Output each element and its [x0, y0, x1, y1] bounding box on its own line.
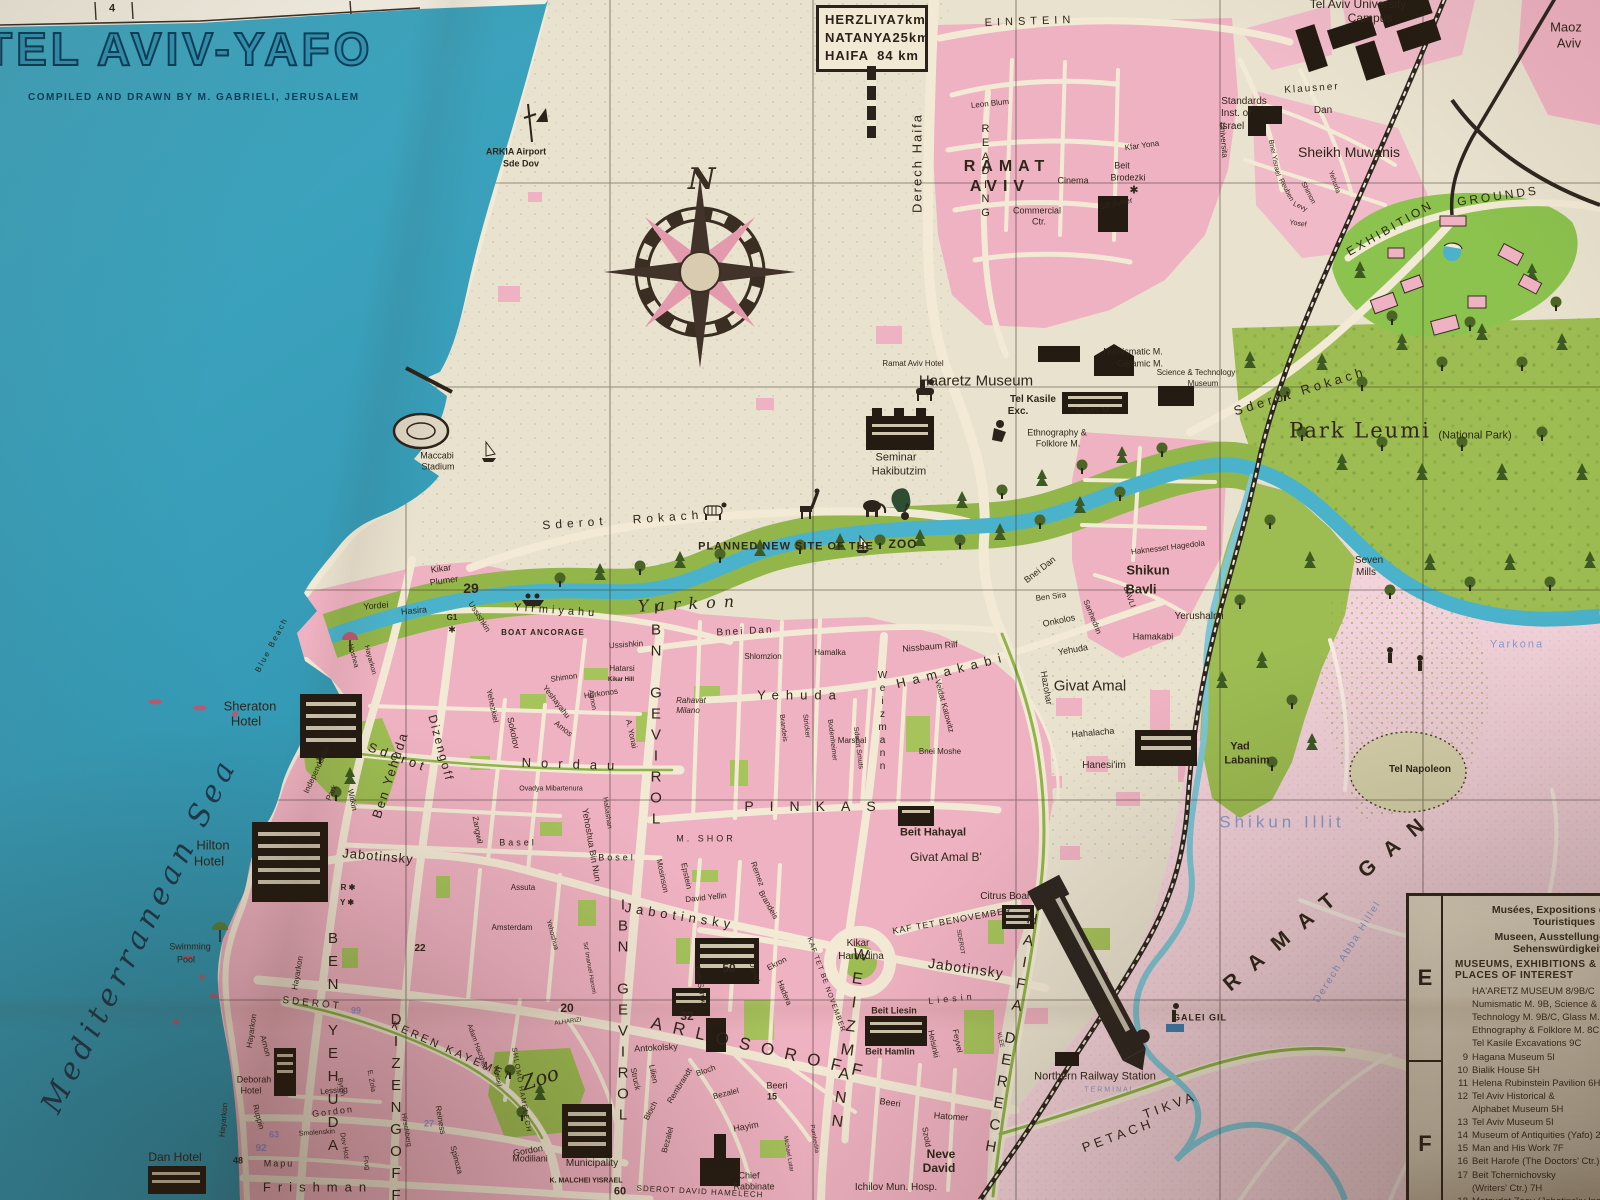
map-label: Bnei Moshe	[919, 748, 961, 756]
map-label: Yeshayahu	[541, 684, 571, 720]
map-label: Jabotinsky	[624, 901, 736, 931]
legend-item-number: 16	[1453, 1155, 1468, 1168]
map-label: Frishman	[263, 1181, 373, 1194]
map-label: Givat Amal B'	[910, 851, 982, 863]
map-label: Maoz	[1550, 21, 1582, 34]
legend-item: Alphabet Museum 5H	[1453, 1103, 1600, 1116]
map-label: Feyvel	[951, 1029, 964, 1054]
map-label: Witkin	[346, 789, 358, 812]
map-label: Yehoshua Bin Nun	[580, 808, 602, 883]
map-label: Hayarkon	[363, 645, 378, 676]
map-label: K. MALCHEI YISRAEL	[550, 1178, 623, 1185]
map-label: Ovadya Mibartenura	[519, 786, 582, 793]
map-label: Ctr.	[1032, 218, 1046, 227]
legend-item-number: 11	[1453, 1077, 1468, 1090]
map-label: Jabotinsky	[927, 956, 1004, 980]
map-label: Kfar Yona	[1124, 140, 1159, 153]
map-label: ALHARIZI	[554, 1017, 582, 1027]
map-label: DIZENGOFF	[389, 1011, 404, 1200]
legend-item-number	[1453, 1103, 1468, 1116]
map-label: Bloch	[643, 1100, 659, 1121]
map-label: Citrus Board	[980, 892, 1036, 902]
map-label: Jabotinsky	[342, 846, 414, 865]
map-label: Veidat Katowitz	[933, 679, 955, 734]
map-label: Lilien	[647, 1064, 659, 1084]
map-label: Shimon	[1299, 181, 1316, 205]
map-label: Hayarkon	[291, 955, 305, 990]
map-label: Sd' Avner	[1099, 197, 1134, 212]
map-label: Hatarsi	[609, 665, 634, 673]
map-label: Universita	[1217, 122, 1228, 158]
map-label: 15	[767, 1093, 777, 1102]
legend-item: 11Helena Rubinstein Pavilion 6H	[1453, 1077, 1600, 1090]
map-label: Amos	[552, 720, 573, 739]
legend-item: 16Beit Harofe (The Doctors' Ctr.)	[1453, 1155, 1600, 1168]
map-label: Bodenheimer	[826, 719, 838, 761]
map-label: Rembrandt	[666, 1067, 694, 1105]
map-label: Yirmiyahu	[513, 603, 598, 620]
map-label: Inst. of	[1221, 109, 1251, 119]
map-label: Leon Blum	[971, 98, 1010, 110]
map-label: Independence	[303, 745, 332, 794]
map-label: Hanesi'im	[1082, 761, 1126, 771]
map-label: Stadium	[421, 463, 454, 472]
legend-item-text: Beit Tchernichovsky	[1472, 1169, 1556, 1182]
map-label: Ekron	[766, 956, 788, 973]
map-label: Sokolov	[505, 716, 520, 749]
map-label: Sheraton	[224, 700, 277, 713]
map-label: Ben Sira	[1035, 591, 1066, 603]
map-label: Yehoshua	[545, 919, 560, 951]
map-label: Weizmann	[877, 670, 887, 774]
map-label: Nordau	[521, 756, 624, 773]
map-label: Reuben	[1277, 178, 1295, 203]
legend-item-text: Bialik House 5H	[1472, 1064, 1540, 1077]
map-label: Levy	[1292, 201, 1308, 214]
map-label: ✱	[448, 626, 456, 635]
map-label: TERMINAL	[1084, 1087, 1135, 1094]
map-label: 20	[560, 1002, 573, 1014]
map-label: M. SHOR	[676, 835, 736, 844]
map-label: Campus	[1348, 12, 1393, 24]
map-label: Pumbedita	[809, 1124, 820, 1153]
map-label: Rokach	[632, 509, 703, 526]
legend-item: 14Museum of Antiquities (Yafo) 2	[1453, 1129, 1600, 1142]
legend-item: HA'ARETZ MUSEUM 8/9B/C	[1453, 985, 1600, 998]
map-label: 50	[722, 962, 735, 974]
map-label: Sderot	[542, 515, 608, 532]
map-label: (National Park)	[1438, 431, 1511, 442]
map-label: Spinoza	[448, 1145, 463, 1175]
map-label: Hoshea	[346, 643, 359, 668]
map-label: R ✱	[341, 884, 356, 892]
legend-item: 18Metzudat Zeev (Jabotinsky Inst.	[1453, 1195, 1600, 1200]
map-label: Basel	[499, 839, 537, 848]
map-label: Szold	[920, 1126, 931, 1147]
map-label: Yerushalmi	[1174, 612, 1223, 622]
map-label: Zoo	[519, 1063, 561, 1094]
map-label: Bezalel	[661, 1126, 676, 1153]
map-label: Bosel	[598, 854, 636, 863]
map-label: Sderot Rokach	[1232, 365, 1368, 418]
legend-item-text: Beit Harofe (The Doctors' Ctr.)	[1472, 1155, 1599, 1168]
map-label: Onkolos	[1042, 613, 1076, 629]
map-label: Hakibutzim	[872, 467, 926, 478]
map-label: Reiness	[434, 1105, 447, 1135]
map-label: Mosinson	[655, 858, 670, 893]
map-label: BEN YEHUDA	[326, 930, 341, 1160]
map-label: Sderot Smuts	[852, 727, 864, 770]
distance-sign: HERZLIYA7km NATANYA25km HAIFA84 km	[816, 5, 928, 72]
map-label: Haaretz Museum	[919, 374, 1033, 389]
compass-north-label: N	[688, 162, 715, 197]
sign-dist: 84 km	[877, 47, 919, 65]
map-canvas: 4Mediterranean SeaBlue BeachARKIA Airpor…	[0, 0, 1600, 1200]
map-label: Helsinki	[926, 1029, 940, 1058]
legend-content: Musées, Expositions et Sites Touristique…	[1443, 896, 1600, 1200]
legend-title-fr: Musées, Expositions et Sites Touristique…	[1453, 904, 1600, 928]
legend-item: 12Tel Aviv Historical &	[1453, 1090, 1600, 1103]
map-label: Remez	[749, 861, 765, 888]
map-label: Beeri	[766, 1082, 787, 1091]
map-label: David	[747, 961, 760, 983]
map-title: TEL AVIV-YAFO	[0, 22, 373, 76]
map-label: IBN GEVIROL	[649, 601, 664, 832]
legend-item-text: Technology M. 9B/C, Glass M.	[1472, 1011, 1600, 1024]
map-label: 63	[269, 1131, 279, 1140]
map-label: 29	[463, 581, 479, 595]
map-label: Hamakabi	[895, 650, 1009, 690]
map-label: Sde Dov	[503, 160, 539, 169]
map-label: Hotel	[240, 1087, 261, 1096]
sign-place: HERZLIYA	[825, 11, 897, 29]
legend-item-number: 12	[1453, 1090, 1468, 1103]
legend-item-text: Tel Kasile Excavations 9C	[1472, 1037, 1581, 1050]
map-label: Maccabi	[420, 452, 454, 461]
map-label: Hilton	[196, 839, 229, 852]
map-label: Hayarkon	[246, 1013, 259, 1048]
map-label: Plumer	[429, 575, 458, 588]
map-label: Kikar	[430, 563, 452, 575]
sign-dist: 7km	[897, 11, 926, 29]
map-label: Milano	[676, 707, 700, 715]
legend-title-de: Museen, Ausstellungen und Sehenswürdigke…	[1453, 931, 1600, 955]
map-label: Sd' Imanuel Haromi	[581, 942, 596, 995]
map-label: EINSTEIN	[984, 15, 1075, 29]
map-label: Numismatic M.	[1103, 348, 1163, 357]
map-label: Shikun Illit	[1219, 814, 1344, 831]
map-label: Mills	[1356, 568, 1376, 578]
map-label: Hamalka	[814, 649, 846, 657]
map-label: Hazohar	[1039, 670, 1054, 705]
map-label: Glass M.	[1076, 407, 1112, 416]
map-label: Hahalacha	[1071, 727, 1115, 740]
map-label: Tel Kasile	[1010, 395, 1056, 405]
legend-item-number	[1453, 998, 1468, 1011]
map-label: Brandeis	[778, 714, 788, 742]
legend-title-en: MUSEUMS, EXHIBITIONS & PLACES OF INTERES…	[1455, 959, 1600, 981]
map-label: Y ✱	[340, 899, 354, 907]
map-label: TIKVA	[1141, 1089, 1199, 1121]
map-label: Ramat Aviv Hotel	[882, 360, 943, 368]
map-label: Deborah	[237, 1076, 272, 1085]
map-label: G1	[447, 614, 458, 622]
legend-item-number	[1453, 1037, 1468, 1050]
map-label: Northern Railway Station	[1034, 1072, 1156, 1083]
legend-item-number	[1453, 1011, 1468, 1024]
legend-item: Ethnography & Folklore M. 8C	[1453, 1024, 1600, 1037]
legend-item-text: Helena Rubinstein Pavilion 6H	[1472, 1077, 1600, 1090]
legend-item-number: 14	[1453, 1129, 1468, 1142]
legend-row-marker: E	[1409, 896, 1441, 1062]
legend-item-number	[1453, 985, 1468, 998]
map-label: Yehezkiel	[485, 689, 500, 724]
map-label: DERECH	[981, 1029, 1019, 1162]
legend-grid-strip: E F	[1409, 896, 1443, 1200]
map-label: Sheikh Muwanis	[1298, 145, 1400, 159]
map-label: Bnei Dan	[1023, 555, 1058, 585]
map-label: Liesin	[928, 992, 976, 1006]
map-label: Shlomzion	[744, 653, 781, 661]
map-label: Beit	[1114, 162, 1130, 171]
map-label: 92	[255, 1144, 266, 1154]
legend-item-text: Tel Aviv Historical &	[1472, 1090, 1555, 1103]
legend-item-text: HA'ARETZ MUSEUM 8/9B/C	[1472, 985, 1595, 998]
map-label: Yad	[1230, 742, 1250, 753]
map-label: Blue Beach	[254, 616, 290, 674]
map-label: PLANNED NEW SITE OF THE	[698, 542, 874, 553]
legend-item-text: Alphabet Museum 5H	[1472, 1103, 1563, 1116]
map-labels-layer: 4Mediterranean SeaBlue BeachARKIA Airpor…	[0, 0, 1600, 1200]
map-label: ZOO	[889, 538, 918, 550]
map-label: Tel Napoleon	[1389, 765, 1451, 775]
map-label: Yehuda	[1327, 170, 1342, 194]
map-label: Neve	[927, 1148, 956, 1160]
legend-item-text: Hagana Museum 5I	[1472, 1051, 1555, 1064]
map-label: HAIFA	[1007, 910, 1041, 1021]
legend-item-number: 10	[1453, 1064, 1468, 1077]
map-label: Klausner	[1284, 82, 1340, 96]
map-label: Sanhedrin	[1081, 599, 1102, 636]
legend-item-number	[1453, 1024, 1468, 1037]
map-label: Beit Hamlin	[865, 1048, 915, 1057]
map-label: Marshal	[838, 737, 866, 745]
map-label: Hotel	[231, 715, 261, 728]
map-label: E. Zola	[366, 1069, 377, 1092]
map-label: Tel Aviv University	[1310, 0, 1406, 10]
sign-place: NATANYA	[825, 29, 892, 47]
map-label: BOAT ANCORAGE	[501, 629, 585, 637]
legend-item-number: 13	[1453, 1116, 1468, 1129]
legend-item-number	[1453, 1182, 1468, 1195]
map-label: Hamakabi	[1133, 633, 1174, 642]
map-label: Hasira	[401, 605, 428, 616]
map-label: Yosef	[1289, 219, 1307, 228]
map-label: Dan	[1314, 106, 1332, 116]
map-label: Museum	[1188, 380, 1219, 388]
map-label: Brodezki	[1110, 174, 1145, 183]
legend-item-number: 18	[1453, 1195, 1468, 1200]
map-label: Haknesset Hagedola	[1131, 540, 1206, 557]
legend-item: 9Hagana Museum 5I	[1453, 1051, 1600, 1064]
map-label: Derech Haifa	[911, 113, 924, 213]
map-label: Bezalel	[712, 1087, 739, 1101]
map-label: Aviv	[1557, 37, 1581, 50]
legend-item: Tel Kasile Excavations 9C	[1453, 1037, 1600, 1050]
legend-item-text: (Writers' Ctr.) 7H	[1472, 1182, 1542, 1195]
map-label: Cinema	[1057, 177, 1088, 186]
map-label: Assuta	[511, 884, 535, 892]
map-label: 27	[424, 1120, 434, 1129]
map-label: Swimming	[169, 943, 211, 952]
legend-item-text: Metzudat Zeev (Jabotinsky Inst.	[1472, 1195, 1600, 1200]
map-label: Beit Liesin	[871, 1007, 917, 1016]
map-label: Rahavat	[676, 697, 706, 705]
map-label: PINKAS	[744, 799, 891, 813]
map-label: Beit Hahayal	[900, 828, 966, 839]
map-label: Yarkona	[1490, 640, 1544, 651]
map-label: Standards	[1221, 97, 1267, 107]
map-label: Yehuda	[757, 689, 843, 702]
map-title-block: TEL AVIV-YAFO COMPILED AND DRAWN BY M. G…	[0, 22, 373, 103]
legend-item: Numismatic M. 9B, Science &	[1453, 998, 1600, 1011]
legend-item-text: Tel Aviv Museum 5I	[1472, 1116, 1554, 1129]
map-label: Ussishkin	[467, 600, 492, 633]
map-label: Amsterdam	[492, 924, 533, 932]
map-label: Park Leumi	[1289, 421, 1431, 442]
map-label: KAF TET BENOVEMBER	[892, 906, 1012, 936]
map-label: Brandeis	[757, 889, 780, 920]
map-label: SDEROT	[955, 929, 965, 955]
legend-item: 10Bialik House 5H	[1453, 1064, 1600, 1077]
legend-item-text: Numismatic M. 9B, Science &	[1472, 998, 1597, 1011]
map-label: Ethnography &	[1027, 429, 1087, 438]
map-label: 4	[109, 4, 115, 15]
map-label: Municipality	[566, 1159, 618, 1169]
map-label: Antokolsky	[634, 1042, 678, 1053]
map-label: Beeri	[879, 1097, 901, 1109]
map-label: Mediterranean Sea	[37, 752, 243, 1118]
map-label: Givat Amal	[1054, 679, 1127, 694]
map-label: Frug	[361, 1155, 370, 1170]
map-label: Park	[325, 784, 339, 802]
map-label: Pool	[177, 956, 195, 965]
map-label: Kikar Hill	[608, 677, 634, 683]
legend-item: Technology M. 9B/C, Glass M.	[1453, 1011, 1600, 1024]
map-label: Commercial	[1013, 207, 1061, 216]
legend-item: 17Beit Tchernichovsky	[1453, 1169, 1600, 1182]
map-label: 60	[614, 1187, 626, 1198]
legend-item: 13Tel Aviv Museum 5I	[1453, 1116, 1600, 1129]
map-label: Ruppin	[251, 1104, 265, 1131]
map-label: Seminar	[876, 453, 917, 464]
map-label: Labanim	[1224, 756, 1269, 767]
map-label: Hadera	[775, 979, 792, 1006]
map-label: Zangwil	[471, 816, 484, 845]
legend-item: 15Man and His Work 7F	[1453, 1142, 1600, 1155]
map-label: 99	[351, 1007, 361, 1016]
map-label: Michael Lutar	[782, 1136, 794, 1173]
map-label: Chief	[738, 1172, 759, 1181]
map-label: IBN GEVIROL	[616, 897, 631, 1128]
map-label: Hayarkon	[219, 1103, 230, 1138]
map-label: Shimon	[550, 672, 578, 684]
map-label: Ichilov Mun. Hosp.	[855, 1183, 937, 1193]
map-label: Seven	[1355, 556, 1383, 566]
sign-pole	[867, 66, 876, 138]
map-label: WEIZMANN	[827, 946, 870, 1138]
map-label: 48	[233, 1157, 243, 1166]
legend-box: E F Musées, Expositions et Sites Tourist…	[1406, 893, 1600, 1200]
map-label: David Yellin	[685, 892, 727, 904]
map-label: David	[923, 1162, 956, 1174]
map-label: Exc.	[1008, 407, 1029, 417]
map-label: EXHIBITION	[1345, 198, 1436, 257]
map-label: AVIV	[970, 179, 1030, 195]
map-label: Nissbaum Rilf	[902, 640, 958, 654]
map-label: ARKIA Airport	[486, 148, 546, 157]
map-label: Dizengoff	[426, 713, 455, 782]
legend-item-text: Museum of Antiquities (Yafo) 2	[1472, 1129, 1600, 1142]
map-label: Ussishkin	[609, 640, 644, 650]
map-label: Dan Hotel	[148, 1151, 201, 1163]
sign-place: HAIFA	[825, 47, 869, 65]
map-label: Bnei Yisrael	[1267, 139, 1282, 177]
map-label: Bloch	[695, 1064, 717, 1078]
map-label: Hayim	[733, 1120, 760, 1133]
map-label: PETACH	[1080, 1116, 1156, 1154]
map-label: Mapu	[264, 1160, 295, 1169]
map-label: Ben Saruk	[693, 966, 707, 1004]
map-label: Folklore M.	[1036, 440, 1081, 449]
legend-item-text: Man and His Work 7F	[1472, 1142, 1564, 1155]
sign-dist: 25km	[892, 29, 929, 47]
map-label: GROUNDS	[1456, 184, 1539, 207]
map-label: GALEI GIL	[1173, 1014, 1227, 1023]
legend-item-number: 9	[1453, 1051, 1468, 1064]
map-label: Science & Technology	[1157, 369, 1236, 377]
map-label: 22	[414, 944, 425, 954]
map-label: Shikun	[1126, 564, 1169, 577]
map-label: Habashan	[601, 797, 612, 830]
map-credit: COMPILED AND DRAWN BY M. GABRIELI, JERUS…	[28, 92, 373, 103]
map-label: Hotel	[194, 855, 224, 868]
legend-item-number: 17	[1453, 1169, 1468, 1182]
map-label: Yehuda	[1057, 643, 1088, 657]
legend-row-marker: F	[1409, 1062, 1441, 1200]
legend-item-number: 15	[1453, 1142, 1468, 1155]
map-label: RAMAT	[964, 159, 1051, 175]
map-label: A. Yonai	[624, 719, 638, 749]
legend-item-text: Ethnography & Folklore M. 8C	[1472, 1024, 1599, 1037]
map-label: Yarkon	[638, 593, 743, 614]
map-label: Yordei	[363, 600, 389, 611]
legend-items: HA'ARETZ MUSEUM 8/9B/CNumismatic M. 9B, …	[1453, 985, 1600, 1200]
map-label: Arnon	[258, 1035, 271, 1058]
map-label: Epstein	[679, 862, 692, 890]
map-label: Hatomer	[933, 1111, 968, 1122]
legend-item: (Writers' Ctr.) 7H	[1453, 1182, 1600, 1195]
map-label: Bnei Dan	[716, 626, 774, 639]
map-label: Stricker	[801, 714, 811, 738]
